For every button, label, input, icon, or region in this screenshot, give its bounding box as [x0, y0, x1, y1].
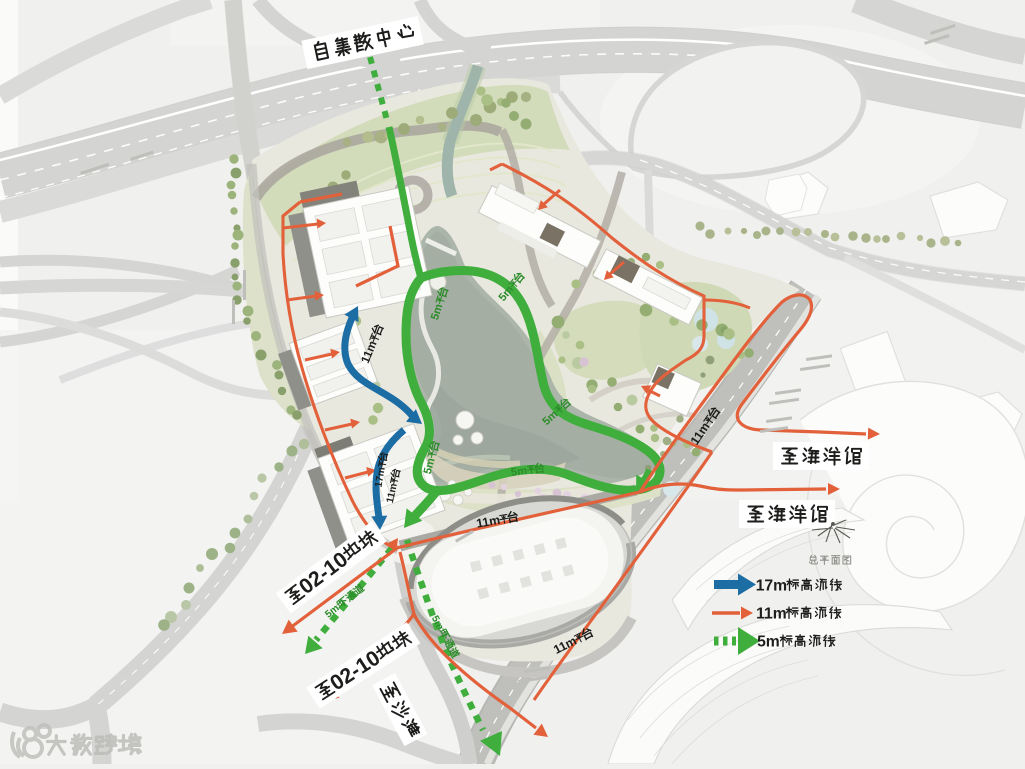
- svg-text:台: 台: [505, 508, 520, 525]
- svg-text:台: 台: [533, 460, 546, 475]
- svg-text:5m: 5m: [510, 465, 528, 479]
- svg-text:5m: 5m: [757, 633, 780, 650]
- svg-text:17m: 17m: [756, 577, 787, 594]
- svg-text:11m: 11m: [756, 605, 787, 622]
